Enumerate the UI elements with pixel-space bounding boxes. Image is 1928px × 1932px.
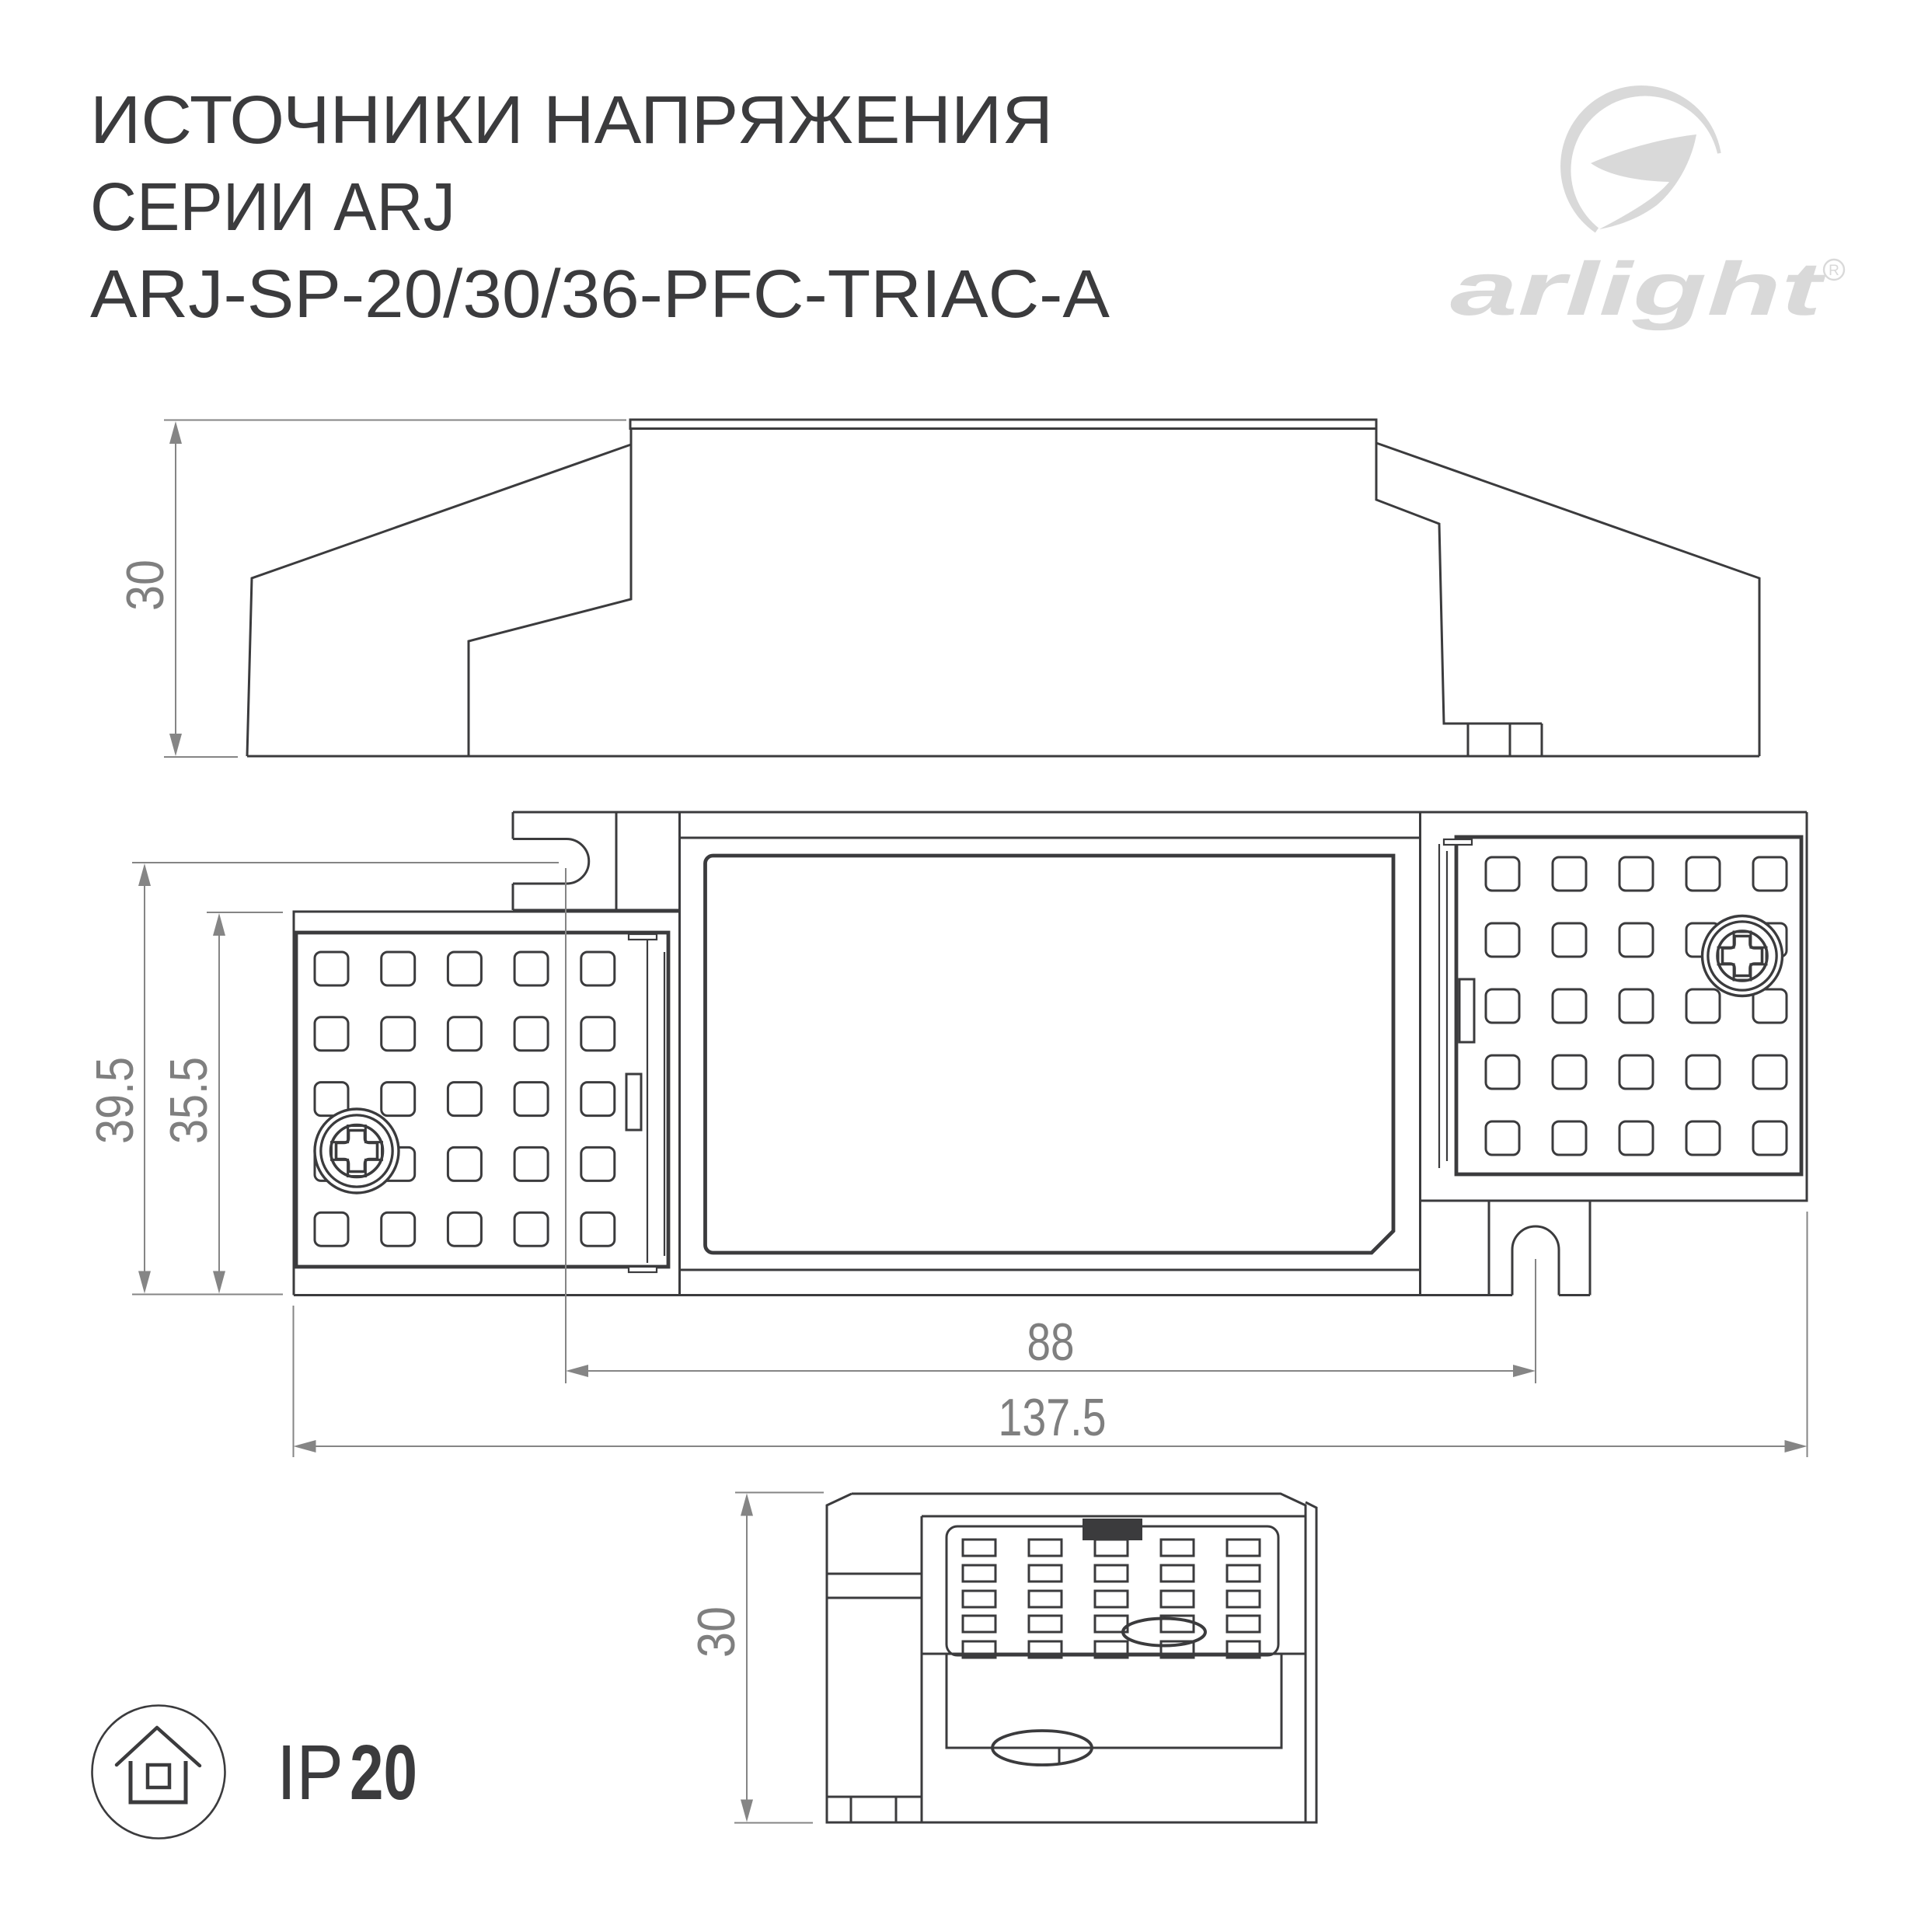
svg-text:35.5: 35.5 bbox=[159, 1057, 218, 1144]
svg-text:30: 30 bbox=[116, 560, 175, 611]
svg-text:arlight: arlight bbox=[1450, 246, 1826, 331]
svg-text:88: 88 bbox=[1027, 1313, 1075, 1372]
svg-text:30: 30 bbox=[687, 1606, 746, 1658]
svg-text:ИСТОЧНИКИ НАПРЯЖЕНИЯ: ИСТОЧНИКИ НАПРЯЖЕНИЯ bbox=[90, 82, 1053, 158]
svg-text:20: 20 bbox=[350, 1729, 417, 1816]
svg-text:137.5: 137.5 bbox=[999, 1388, 1107, 1447]
svg-text:39.5: 39.5 bbox=[85, 1057, 145, 1144]
svg-text:R: R bbox=[1829, 263, 1839, 279]
svg-text:СЕРИИ ARJ: СЕРИИ ARJ bbox=[90, 169, 455, 245]
svg-text:ARJ-SP-20/30/36-PFC-TRIAC-A: ARJ-SP-20/30/36-PFC-TRIAC-A bbox=[90, 256, 1110, 332]
svg-text:IP: IP bbox=[277, 1729, 343, 1816]
